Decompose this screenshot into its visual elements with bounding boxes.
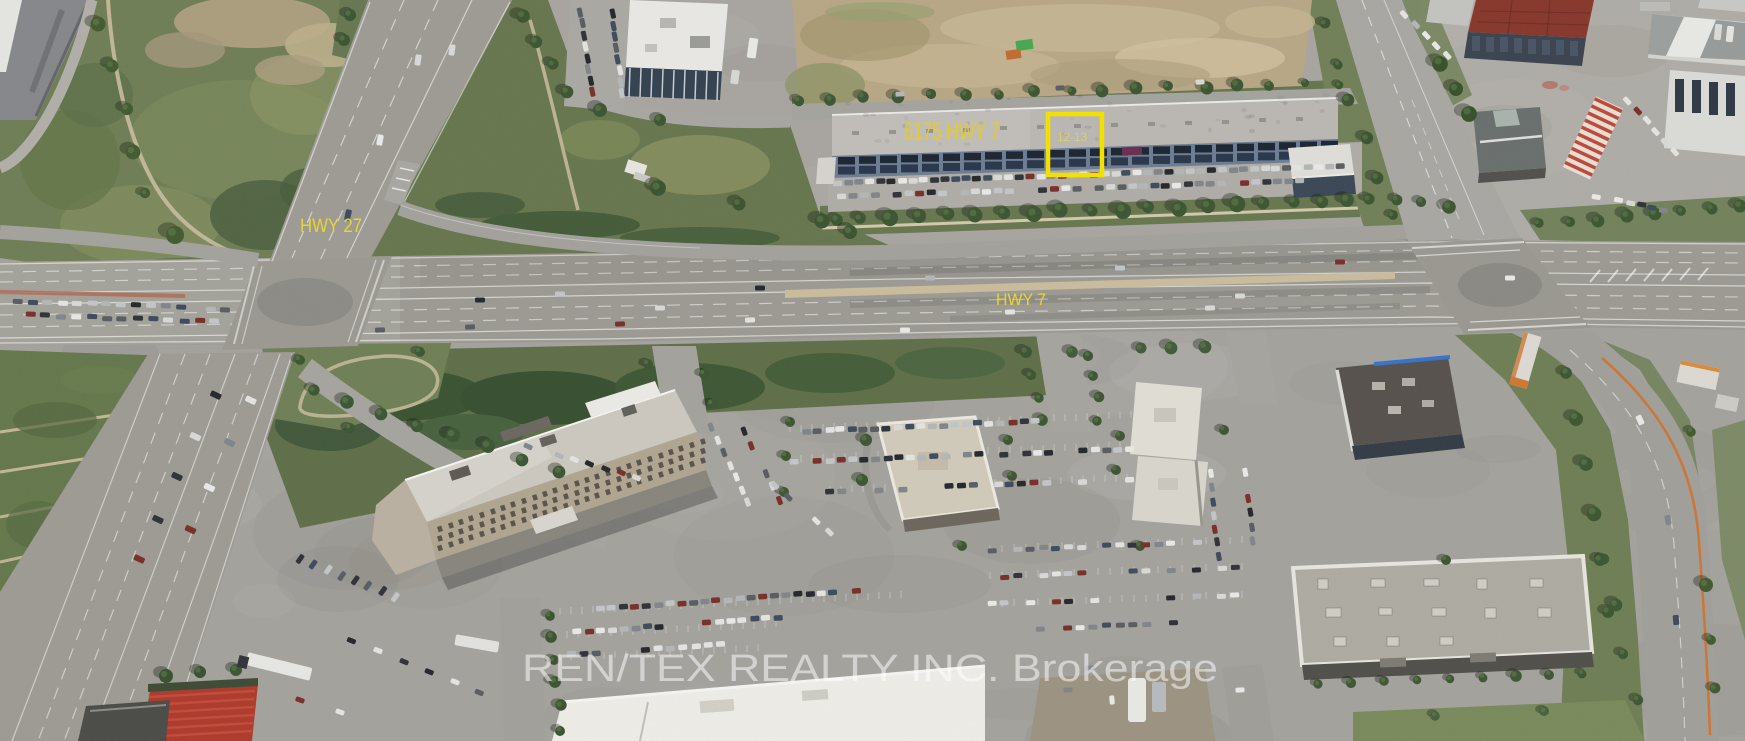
svg-text:12-13: 12-13: [1057, 130, 1087, 144]
svg-text:HWY 27: HWY 27: [300, 216, 362, 237]
svg-text:REN/TEX REALTY INC. Brokerage: REN/TEX REALTY INC. Brokerage: [522, 648, 1218, 690]
svg-text:6175 HWY 7: 6175 HWY 7: [904, 118, 1000, 146]
svg-text:HWY 7: HWY 7: [996, 290, 1046, 309]
